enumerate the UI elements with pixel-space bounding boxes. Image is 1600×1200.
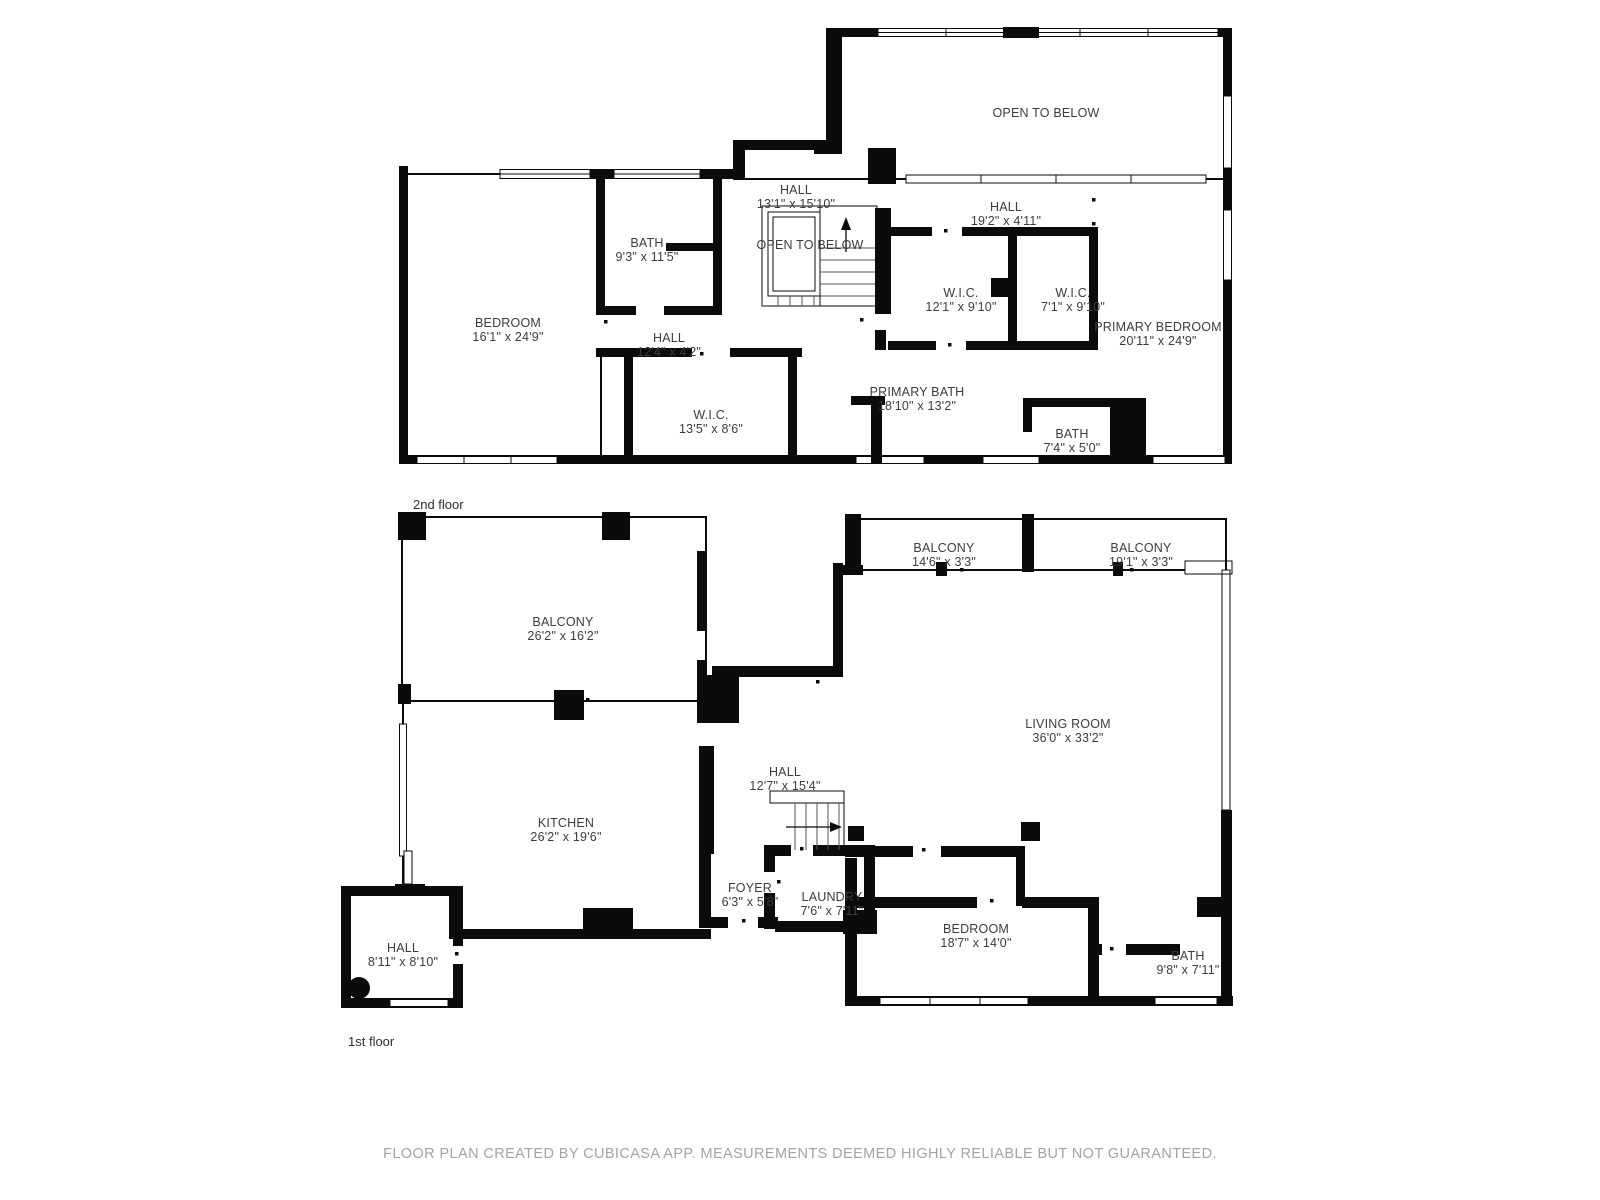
window	[1224, 210, 1232, 280]
room-dims: 12'7" x 15'4"	[749, 779, 820, 793]
floor-tag-1st: 1st floor	[348, 1034, 394, 1049]
room-name: BEDROOM	[472, 316, 543, 330]
room-label-living-room: LIVING ROOM 36'0" x 33'2"	[1025, 717, 1111, 745]
room-label-hall-19-2f: HALL 19'2" x 4'11"	[971, 200, 1041, 228]
stairs-arrow-icon	[830, 822, 842, 832]
room-dims: 7'1" x 9'10"	[1041, 300, 1105, 314]
window	[400, 724, 407, 856]
room-dims: 19'2" x 4'11"	[971, 214, 1041, 228]
room-label-foyer: FOYER 6'3" x 5'8"	[722, 881, 779, 909]
room-name: FOYER	[722, 881, 779, 895]
room-label-wic-12-2f: W.I.C. 12'1" x 9'10"	[925, 286, 996, 314]
room-dims: 6'3" x 5'8"	[722, 895, 779, 909]
room-dims: 9'8" x 7'11"	[1156, 963, 1219, 977]
room-dims: 26'2" x 19'6"	[530, 830, 601, 844]
room-name: BATH	[1156, 949, 1219, 963]
room-dims: 18'10" x 13'2"	[870, 399, 965, 413]
room-name: HALL	[971, 200, 1041, 214]
room-label-bath-2f: BATH 9'3" x 11'5"	[615, 236, 678, 264]
room-label-bath-1f: BATH 9'8" x 7'11"	[1156, 949, 1219, 977]
room-name: OPEN TO BELOW	[756, 238, 863, 252]
room-dims: 12'4" x 4'2"	[637, 345, 701, 359]
room-label-open-to-below-stairwell: OPEN TO BELOW	[756, 238, 863, 252]
floor-plan-1st	[341, 512, 1233, 1008]
room-label-bath-74-2f: BATH 7'4" x 5'0"	[1044, 427, 1101, 455]
floorplan-drawing	[0, 0, 1600, 1200]
room-label-wic-13-2f: W.I.C. 13'5" x 8'6"	[679, 408, 743, 436]
room-name: W.I.C.	[925, 286, 996, 300]
room-label-kitchen: KITCHEN 26'2" x 19'6"	[530, 816, 601, 844]
room-dims: 9'3" x 11'5"	[615, 250, 678, 264]
room-dims: 19'1" x 3'3"	[1109, 555, 1173, 569]
room-label-primary-bedroom: PRIMARY BEDROOM 20'11" x 24'9"	[1094, 320, 1222, 348]
room-label-primary-bath: PRIMARY BATH 18'10" x 13'2"	[870, 385, 965, 413]
room-name: LAUNDRY	[800, 890, 863, 904]
staircase-icon	[770, 791, 864, 851]
room-name: KITCHEN	[530, 816, 601, 830]
room-label-balcony-14: BALCONY 14'6" x 3'3"	[912, 541, 976, 569]
room-dims: 7'4" x 5'0"	[1044, 441, 1101, 455]
room-name: PRIMARY BATH	[870, 385, 965, 399]
window	[390, 1000, 448, 1007]
window-wall	[1222, 570, 1230, 810]
stairs-up-arrow-icon	[841, 217, 851, 230]
room-dims: 26'2" x 16'2"	[527, 629, 598, 643]
staircase-icon	[762, 206, 877, 306]
room-name: HALL	[637, 331, 701, 345]
window	[880, 998, 1028, 1005]
window	[1224, 96, 1232, 168]
room-label-bedroom-2f: BEDROOM 16'1" x 24'9"	[472, 316, 543, 344]
window	[1185, 561, 1232, 574]
column-icon	[348, 977, 370, 999]
floorplan-page: OPEN TO BELOW HALL 13'1" x 15'10" OPEN T…	[0, 0, 1600, 1200]
window	[983, 457, 1039, 464]
window	[1153, 457, 1225, 464]
room-name: W.I.C.	[1041, 286, 1105, 300]
disclaimer-text: FLOOR PLAN CREATED BY CUBICASA APP. MEAS…	[0, 1146, 1600, 1162]
room-label-wic-7-2f: W.I.C. 7'1" x 9'10"	[1041, 286, 1105, 314]
window	[417, 457, 557, 464]
room-dims: 36'0" x 33'2"	[1025, 731, 1111, 745]
room-label-balcony-large: BALCONY 26'2" x 16'2"	[527, 615, 598, 643]
window	[404, 851, 412, 884]
room-dims: 16'1" x 24'9"	[472, 330, 543, 344]
room-dims: 18'7" x 14'0"	[940, 936, 1011, 950]
room-label-laundry: LAUNDRY 7'6" x 7'11"	[800, 890, 863, 918]
room-dims: 20'11" x 24'9"	[1094, 334, 1222, 348]
room-name: BALCONY	[527, 615, 598, 629]
room-name: OPEN TO BELOW	[992, 106, 1099, 120]
room-name: LIVING ROOM	[1025, 717, 1111, 731]
room-dims: 12'1" x 9'10"	[925, 300, 996, 314]
room-name: HALL	[749, 765, 820, 779]
room-name: BALCONY	[912, 541, 976, 555]
room-dims: 13'5" x 8'6"	[679, 422, 743, 436]
room-name: HALL	[368, 941, 438, 955]
room-label-bedroom-1f: BEDROOM 18'7" x 14'0"	[940, 922, 1011, 950]
room-label-hall-2f: HALL 13'1" x 15'10"	[757, 183, 835, 211]
room-label-hall-1f: HALL 12'7" x 15'4"	[749, 765, 820, 793]
room-name: PRIMARY BEDROOM	[1094, 320, 1222, 334]
room-name: BALCONY	[1109, 541, 1173, 555]
room-label-hall-8-1f: HALL 8'11" x 8'10"	[368, 941, 438, 969]
room-name: BEDROOM	[940, 922, 1011, 936]
window	[856, 457, 924, 464]
room-label-hall-12-2f: HALL 12'4" x 4'2"	[637, 331, 701, 359]
room-dims: 13'1" x 15'10"	[757, 197, 835, 211]
room-dims: 14'6" x 3'3"	[912, 555, 976, 569]
window	[1155, 998, 1217, 1005]
room-label-open-to-below-upper: OPEN TO BELOW	[992, 106, 1099, 120]
room-name: BATH	[1044, 427, 1101, 441]
room-dims: 8'11" x 8'10"	[368, 955, 438, 969]
room-dims: 7'6" x 7'11"	[800, 904, 863, 918]
floor-tag-2nd: 2nd floor	[413, 497, 464, 512]
room-name: W.I.C.	[679, 408, 743, 422]
room-name: HALL	[757, 183, 835, 197]
room-name: BATH	[615, 236, 678, 250]
room-label-balcony-19: BALCONY 19'1" x 3'3"	[1109, 541, 1173, 569]
